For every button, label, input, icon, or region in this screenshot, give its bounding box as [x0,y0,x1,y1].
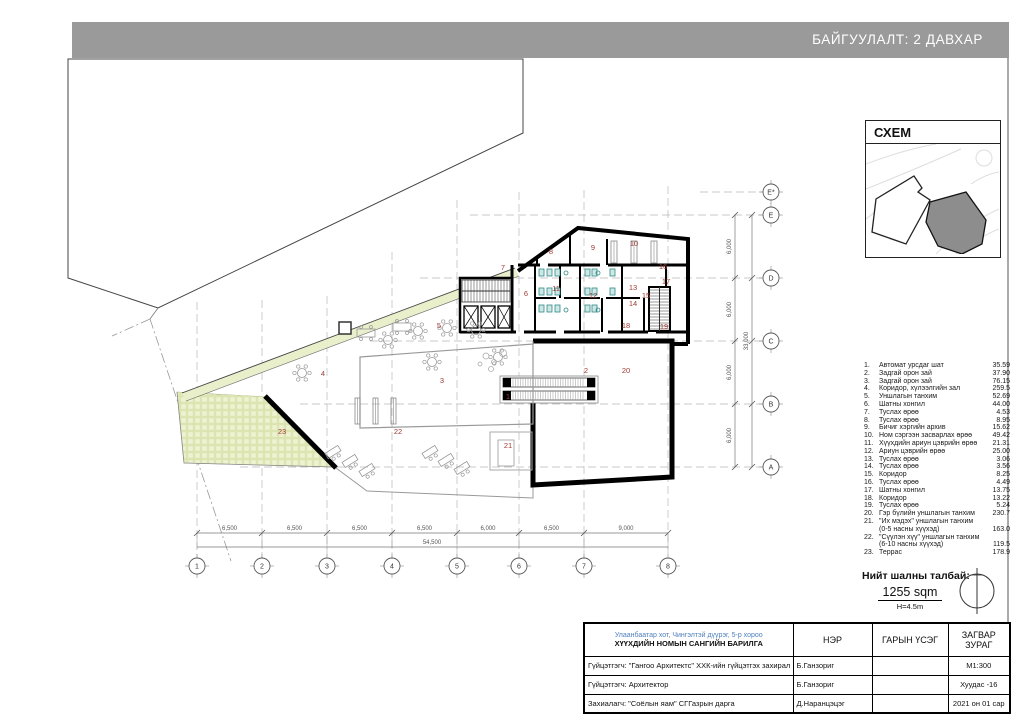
role-cell: Гүйцэтгэгч: "Гангоо Архитектс" ХХК-ийн г… [584,656,793,675]
legend-row: 11.Хүүхдийн ариун цэврийн өрөө21.31 [864,440,1010,448]
grid-bubble: 8 [656,554,680,578]
room-number: 10 [630,239,638,248]
plant [478,362,482,366]
room-number: 3 [440,376,444,385]
legend-row: 2.Задгай орон зай37.90 [864,370,1010,378]
terrace-area [170,390,340,468]
svg-text:8: 8 [666,564,670,571]
dim-label: 6,500 [417,526,433,532]
project-name: ХҮҮХДИЙН НОМЫН САНГИЙН БАРИЛГА [588,639,790,648]
grid-bubble: 4 [380,554,404,578]
total-area-block: Нийт шалны талбай: 1255 sqm H=4.5m [862,570,962,611]
room-outlines [360,344,533,470]
svg-text:4: 4 [390,564,394,571]
drawing-type-line1: ЗАГВАР [952,630,1007,640]
room-number: 12 [589,291,597,300]
room-number: 11 [552,284,560,293]
round-table [379,332,397,348]
escalators [500,376,598,403]
name-cell: Д.Наранцэцэг [793,694,872,713]
dim-label: 6,500 [352,526,368,532]
project-cell: Улаанбаатар хот, Чингэлтэй дүүрэг, 5-р х… [584,623,793,656]
stairs-elevators [460,278,670,332]
room-number: 8 [549,247,553,256]
room-number: 17 [662,277,670,286]
title-bar: БАЙГУУЛАЛТ: 2 ДАВХАР [72,22,1009,58]
room-number: 16 [659,262,667,271]
legend-row: 12.Ариун цэврийн өрөө25.00 [864,448,1010,456]
book-shelf [373,398,378,424]
name-cell: Б.Ганзориг [793,675,872,694]
room-number: 23 [278,427,286,436]
grid-bubble: E [759,203,783,227]
legend-row: 20.Гэр бүлийн уншлагын танхим230.7 [864,510,1010,518]
legend-row: 18.Коридор13.22 [864,495,1010,503]
grid-bubble: E* [759,180,783,204]
north-marker [953,565,1001,622]
room-number: 18 [622,321,630,330]
total-area-value: 1255 sqm [878,585,942,601]
role-cell: Захиалагч: "Соёлын яам" СГГазрын дарга [584,694,793,713]
current-building-footprint [926,192,986,254]
legend-row: 21."Их мэдэх" уншлагын танхим [864,518,1010,526]
toilet-fixtures [539,269,615,312]
room-number: 9 [591,243,595,252]
legend-row: 10.Ном сэргээн засварлах өрөө49.42 [864,432,1010,440]
svg-text:D: D [768,276,773,283]
drawing-type-line2: ЗУРАГ [952,640,1007,650]
grid-bubble: C [759,329,783,353]
legend-row: 22."Сүүлэн хүү" уншлагын танхим [864,534,1010,542]
reading-desk [438,453,456,470]
grid-bubble: B [759,392,783,416]
room-legend: 1.Автомат урсдаг шат35.592.Задгай орон з… [864,362,1010,557]
room-number: 13 [629,283,637,292]
room-number: 4 [321,369,325,378]
room-number: 22 [394,427,402,436]
dim-label: 6,000 [727,427,733,443]
room-number: 6 [524,289,528,298]
date-cell: 2021 он 01 сар [948,694,1010,713]
wc-fixture [547,305,552,312]
plant [489,367,494,372]
adjacent-building-outline [68,59,523,319]
book-shelf [651,241,657,263]
dim-total-label: 33,000 [744,331,750,350]
total-area-label: Нийт шалны талбай: [862,570,962,582]
floor-height-value: H=4.5m [878,602,942,611]
wc-fixture [555,269,560,276]
reading-desk [342,454,360,471]
signature-cell [872,694,948,713]
svg-text:C: C [768,339,773,346]
signature-cell [872,656,948,675]
legend-row: 17.Шатны хонгил13.75 [864,487,1010,495]
title-block-row: Захиалагч: "Соёлын яам" СГГазрын дарга Д… [584,694,1010,713]
schem-title: СХЕМ [866,121,1000,144]
schem-panel: СХЕМ [865,120,1001,258]
sink-fixture [564,308,568,312]
dim-label: 6,000 [727,364,733,380]
title-block-row: Гүйцэтгэгч: Архитектор Б.Ганзориг Хуудас… [584,675,1010,694]
wc-fixture [539,305,544,312]
svg-text:2: 2 [260,564,264,571]
room-number: 20 [622,366,630,375]
signature-cell [872,675,948,694]
legend-row: 7.Туслах өрөө4.53 [864,409,1010,417]
dim-label: 6,000 [480,526,496,532]
other-building-footprint [872,176,930,244]
dim-label: 6,500 [287,526,303,532]
legend-row: 5.Уншлагын танхим52.69 [864,393,1010,401]
grid-bubble: 5 [445,554,469,578]
column-drawing-type: ЗАГВАР ЗУРАГ [948,623,1010,656]
grid-bubble: 1 [185,554,209,578]
svg-text:7: 7 [582,564,586,571]
role-cell: Гүйцэтгэгч: Архитектор [584,675,793,694]
site-key-map [866,144,999,254]
wc-fixture [610,288,615,295]
drawing-sheet: 6,5006,5006,5006,5006,0006,5009,00054,50… [0,0,1024,724]
legend-row-sub: (0-5 насны хүүхэд)163.0 [864,526,1010,534]
room-number: 14 [629,299,637,308]
svg-text:A: A [769,465,774,472]
column-signature: ГАРЫН ҮСЭГ [872,623,948,656]
plant [483,353,489,359]
wc-fixture [585,269,590,276]
grid-bubble: D [759,266,783,290]
wc-fixture [555,305,560,312]
dim-label: 6,000 [727,301,733,317]
dim-label: 9,000 [618,526,634,532]
room-number: 1 [506,392,510,401]
svg-text:E*: E* [767,190,775,197]
grid-bubble: 7 [572,554,596,578]
grid-bubble: 3 [315,554,339,578]
grid-bubble: 6 [507,554,531,578]
wc-fixture [539,288,544,295]
svg-text:5: 5 [455,564,459,571]
column-name: НЭР [793,623,872,656]
legend-row: 13.Туслах өрөө3.06 [864,456,1010,464]
room-number: 21 [504,441,512,450]
sink-fixture [564,271,568,275]
book-shelf [355,398,360,424]
title-block: Улаанбаатар хот, Чингэлтэй дүүрэг, 5-р х… [583,622,1011,714]
svg-text:6: 6 [517,564,521,571]
wc-fixture [610,269,615,276]
sheet-title: БАЙГУУЛАЛТ: 2 ДАВХАР [812,32,983,47]
dim-label: 6,000 [727,238,733,254]
svg-text:E: E [769,213,774,220]
legend-row: 9.Бичиг хэргийн архив15.62 [864,424,1010,432]
svg-text:3: 3 [325,564,329,571]
title-block-row: Гүйцэтгэгч: "Гангоо Архитектс" ХХК-ийн г… [584,656,1010,675]
reading-desk [359,463,377,480]
legend-row: 4.Коридор, хүлээлгийн зал259.5 [864,385,1010,393]
legend-row: 19.Туслах өрөө5.24 [864,502,1010,510]
round-table [409,323,427,339]
legend-row: 16.Туслах өрөө4.49 [864,479,1010,487]
legend-row: 14.Туслах өрөө3.56 [864,463,1010,471]
room-number: 2 [584,366,588,375]
legend-row: 6.Шатны хонгил44.00 [864,401,1010,409]
round-table [293,365,311,381]
meeting-table [393,320,411,335]
building-walls [265,228,688,485]
dim-total-label: 54,500 [423,540,442,546]
legend-row-sub: (6-10 насны хүүхэд)119.5 [864,541,1010,549]
room-number: 5 [437,321,441,330]
grid-bubble: 2 [250,554,274,578]
legend-row: 23.Террас178.9 [864,549,1010,557]
page-cell: Хуудас -16 [948,675,1010,694]
grid-bubble: A [759,455,783,479]
room-number: 19 [660,322,668,331]
scale-cell: М1:300 [948,656,1010,675]
legend-row: 1.Автомат урсдаг шат35.59 [864,362,1010,370]
wc-fixture [547,269,552,276]
wc-fixture [539,269,544,276]
round-table [423,354,441,370]
dim-label: 6,500 [544,526,560,532]
book-shelf [611,241,617,263]
room-number: 15 [642,291,650,300]
wc-fixture [585,305,590,312]
project-address: Улаанбаатар хот, Чингэлтэй дүүрэг, 5-р х… [588,632,790,639]
legend-row: 15.Коридор8.25 [864,471,1010,479]
name-cell: Б.Ганзориг [793,656,872,675]
room-number: 7 [501,263,505,272]
svg-text:1: 1 [195,564,199,571]
reading-desk [422,445,440,462]
svg-text:B: B [769,402,774,409]
dim-label: 6,500 [222,526,238,532]
